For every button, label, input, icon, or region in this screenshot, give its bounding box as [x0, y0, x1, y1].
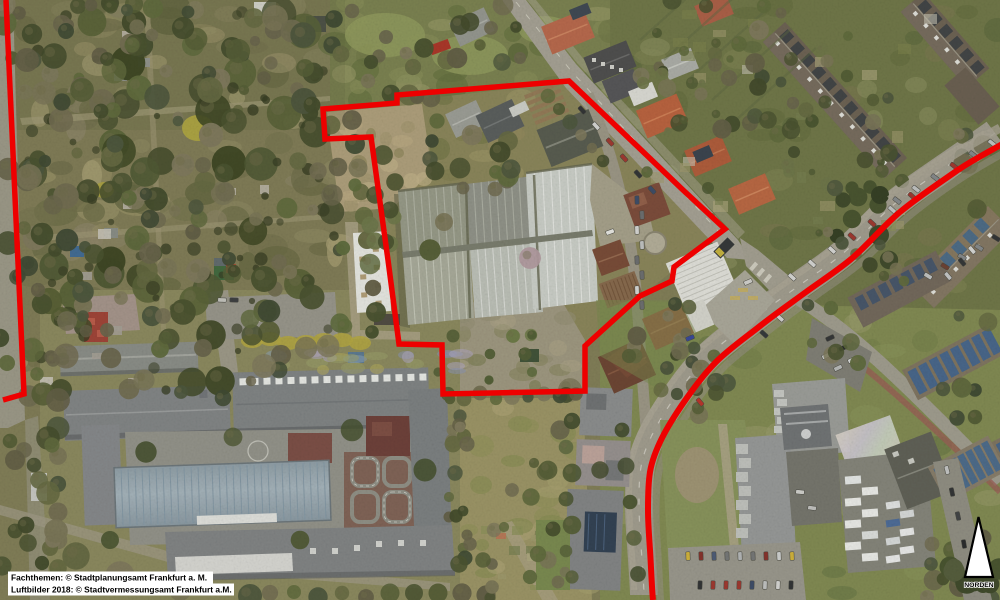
svg-text:NORDEN: NORDEN — [964, 582, 994, 589]
svg-text:Fachthemen: © Stadtplanungsamt: Fachthemen: © Stadtplanungsamt Frankfurt… — [11, 573, 207, 583]
svg-text:Luftbilder 2018: © Stadtvermes: Luftbilder 2018: © Stadtvermessungsamt F… — [11, 585, 232, 595]
